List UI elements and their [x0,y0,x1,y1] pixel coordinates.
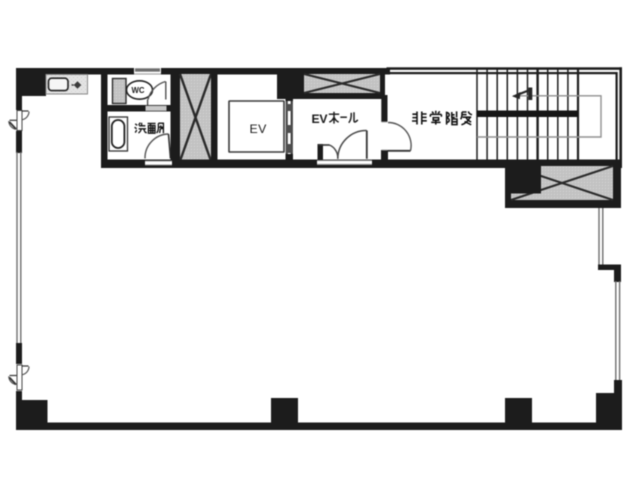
svg-text:EV: EV [250,122,268,136]
svg-text:EV: EV [312,112,329,126]
svg-text:WC: WC [132,86,145,95]
